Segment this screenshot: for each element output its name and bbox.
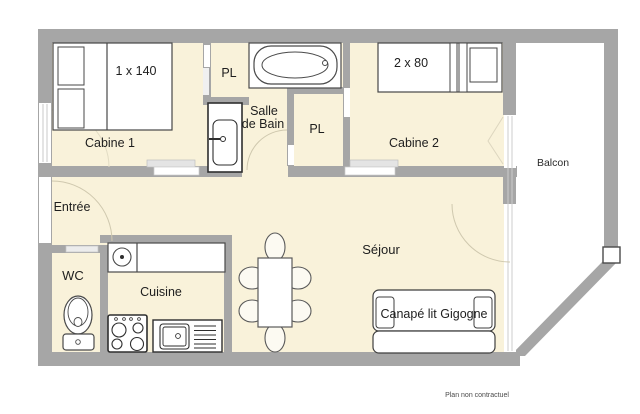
cabine2-window <box>504 115 516 168</box>
furniture-label-bed-cabine1: 1 x 140 <box>115 64 156 78</box>
pillow-icon <box>58 47 84 85</box>
entrance-door <box>39 177 51 243</box>
wall-wc-kitchen <box>100 245 108 352</box>
room-label-cabine2: Cabine 2 <box>389 136 439 150</box>
cabine2-sliding-door <box>345 167 395 175</box>
room-label-entree: Entrée <box>54 200 91 214</box>
wall-kitchen-top <box>100 235 232 243</box>
bathtub-icon <box>249 43 341 88</box>
bed-cabine2-divider <box>450 43 457 92</box>
stove-icon <box>108 315 147 352</box>
sofa-bed-icon <box>373 290 495 353</box>
floor-plan-drawing: Entrée Cabine 1 PL Salle de Bain PL Cabi… <box>0 0 640 414</box>
wall-top <box>38 29 618 43</box>
washbasin-icon <box>208 103 242 172</box>
bed-cabine2-divider2 <box>459 43 467 92</box>
room-label-balcon: Balcon <box>537 157 569 169</box>
stove-burner <box>133 323 143 333</box>
room-label-pl-hall: PL <box>221 66 236 80</box>
floor-plan: Entrée Cabine 1 PL Salle de Bain PL Cabi… <box>0 0 640 414</box>
toilet-bowl-detail <box>74 318 82 327</box>
room-label-wc: WC <box>62 268 84 283</box>
washbasin-bowl <box>213 120 237 165</box>
sofa-seat <box>373 331 495 353</box>
corner-pillar <box>603 247 620 263</box>
cabine1-sliding-door-panel <box>147 160 195 167</box>
pillow-icon <box>58 89 84 128</box>
room-label-salle-de-bain-2: de Bain <box>242 117 284 131</box>
bed-cabine1-icon <box>53 43 172 130</box>
pl1-door-lower <box>203 68 209 95</box>
sink-basin-inner <box>163 327 186 346</box>
kitchen-appliance-dot <box>120 255 124 259</box>
stove-burner <box>112 339 122 349</box>
room-label-sejour: Séjour <box>362 242 400 257</box>
wc-door <box>66 246 98 252</box>
room-label-pl-cabine2: PL <box>309 122 324 136</box>
stove-burner <box>131 338 144 351</box>
sink-icon <box>153 320 222 352</box>
sejour-window <box>504 262 516 352</box>
wall-balcony-right <box>604 29 618 248</box>
pl2-door-right <box>344 88 350 117</box>
wall-bottom <box>38 352 520 366</box>
wall-sejour-balcony-upper <box>503 43 516 115</box>
stove-burner <box>112 323 126 337</box>
washbasin-tap-knob <box>221 137 226 142</box>
dining-table-icon <box>258 258 292 327</box>
bathroom-doorway <box>242 166 288 177</box>
room-label-salle-de-bain-1: Salle <box>250 104 278 118</box>
stove-knob <box>115 318 118 321</box>
wall-sejour-balcony-mid <box>503 168 516 204</box>
furniture-label-sofa: Canapé lit Gigogne <box>380 307 487 321</box>
stove-knob <box>123 318 126 321</box>
kitchen-counter-icon <box>108 243 225 272</box>
balcony-door <box>504 204 516 262</box>
pl1-door-upper <box>204 45 210 67</box>
pl2-door-left <box>288 145 294 165</box>
bathtub-basin <box>262 52 328 78</box>
furniture-label-bed-cabine2: 2 x 80 <box>394 56 428 70</box>
stove-knob <box>138 318 141 321</box>
stove-knob <box>130 318 133 321</box>
cabine1-window <box>39 103 51 163</box>
footer-note: Plan non contractuel <box>445 392 509 399</box>
nightstand-icon <box>470 48 497 82</box>
chair-icon <box>265 233 285 261</box>
cabine2-sliding-door-panel <box>350 160 398 167</box>
chair-icon <box>265 324 285 352</box>
sink-drain <box>176 334 181 339</box>
toilet-flush-button <box>76 340 81 345</box>
room-label-cabine1: Cabine 1 <box>85 136 135 150</box>
bathtub-drain <box>323 61 328 66</box>
toilet-icon <box>63 296 94 350</box>
cabine1-sliding-door <box>154 167 199 175</box>
room-label-cuisine: Cuisine <box>140 285 182 299</box>
